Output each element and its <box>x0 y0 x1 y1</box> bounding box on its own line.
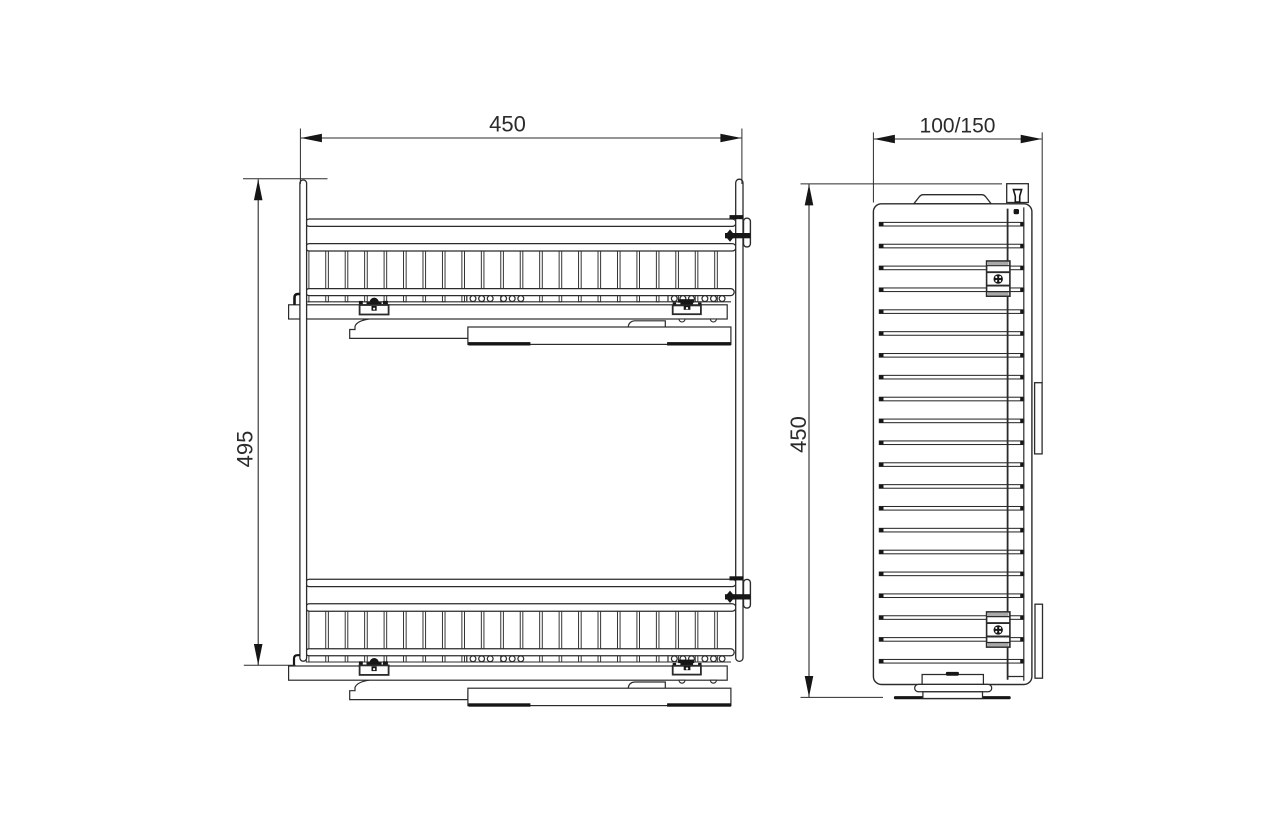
svg-text:450: 450 <box>489 112 526 137</box>
svg-text:450: 450 <box>786 416 811 453</box>
svg-text:495: 495 <box>233 431 258 468</box>
svg-text:100/150: 100/150 <box>920 114 996 137</box>
